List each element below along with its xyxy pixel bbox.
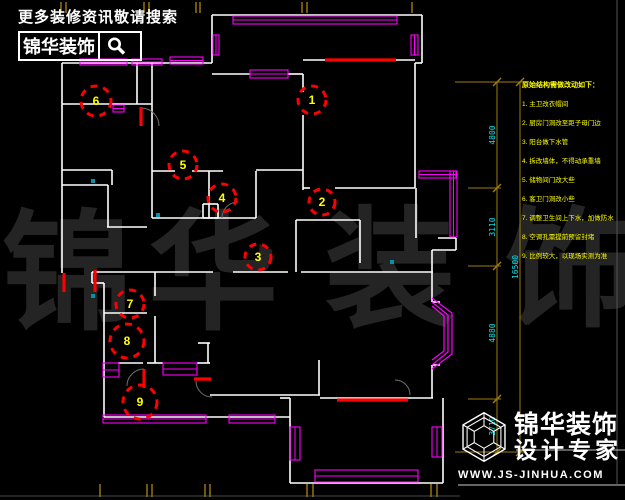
brand-search-box[interactable]: 锦华装饰: [18, 31, 142, 61]
note-item-7: 7. 调整卫生间上下水，加做防水: [522, 209, 622, 228]
dimension-value: 3110: [488, 217, 497, 236]
symbol-dot: [156, 213, 160, 217]
note-item-5: 5. 储物间门改大些: [522, 171, 622, 190]
symbol-dot: [390, 260, 394, 264]
watermark-char: 华: [148, 197, 278, 349]
note-item-9: 9. 比例较大，以现场实测为准: [522, 247, 622, 266]
cube-logo-icon: [458, 408, 510, 466]
cad-floorplan-screenshot: 锦华装饰123456789480031104880371016500 更多装修资…: [0, 0, 625, 500]
revision-number-7: 7: [127, 297, 134, 311]
company-logo-block: 锦华装饰 设计专家 WWW.JS-JINHUA.COM: [458, 408, 625, 481]
notes-title: 原始结构需做改动如下：: [522, 80, 622, 90]
symbol-dot: [91, 294, 95, 298]
note-item-2: 2. 厨房门洞改至距子母门边: [522, 114, 622, 133]
revision-number-9: 9: [137, 395, 144, 409]
door-swing-arc: [127, 369, 144, 386]
symbol-dot: [91, 179, 95, 183]
search-icon[interactable]: [100, 36, 132, 56]
revision-number-4: 4: [219, 191, 226, 205]
revision-number-1: 1: [309, 93, 316, 107]
note-item-3: 3. 阳台做下水管: [522, 133, 622, 152]
revision-number-3: 3: [255, 250, 262, 264]
revision-number-8: 8: [124, 334, 131, 348]
revision-number-6: 6: [93, 94, 100, 108]
notes-list: 1. 主卫改衣帽间2. 厨房门洞改至距子母门边3. 阳台做下水管4. 拆改墙体，…: [522, 95, 622, 266]
note-item-4: 4. 拆改墙体，不得动承重墙: [522, 152, 622, 171]
promo-tagline: 更多装修资讯敬请搜索: [18, 6, 178, 27]
promo-banner: 更多装修资讯敬请搜索 锦华装饰: [18, 6, 178, 61]
door-swing-arc: [196, 381, 212, 397]
revision-notes-panel: 原始结构需做改动如下： 1. 主卫改衣帽间2. 厨房门洞改至距子母门边3. 阳台…: [522, 80, 622, 266]
door-swing-arc: [141, 108, 159, 126]
watermark-char: 锦: [2, 197, 132, 349]
revision-number-2: 2: [319, 195, 326, 209]
note-item-1: 1. 主卫改衣帽间: [522, 95, 622, 114]
brand-name: 锦华装饰: [20, 33, 98, 59]
dimension-value: 4800: [488, 125, 497, 144]
dimension-total-value: 16500: [511, 255, 520, 279]
watermark-char: 装: [325, 194, 455, 346]
logo-brand-name: 锦华装饰: [514, 412, 622, 438]
logo-brand-slogan: 设计专家: [514, 438, 622, 463]
note-item-8: 8. 空调孔需提前预留封堵: [522, 228, 622, 247]
website-url[interactable]: WWW.JS-JINHUA.COM: [458, 469, 625, 481]
revision-number-5: 5: [180, 158, 187, 172]
note-item-6: 6. 客卫门洞改小些: [522, 190, 622, 209]
dimension-value: 4880: [488, 323, 497, 342]
door-swing-arc: [395, 380, 410, 395]
